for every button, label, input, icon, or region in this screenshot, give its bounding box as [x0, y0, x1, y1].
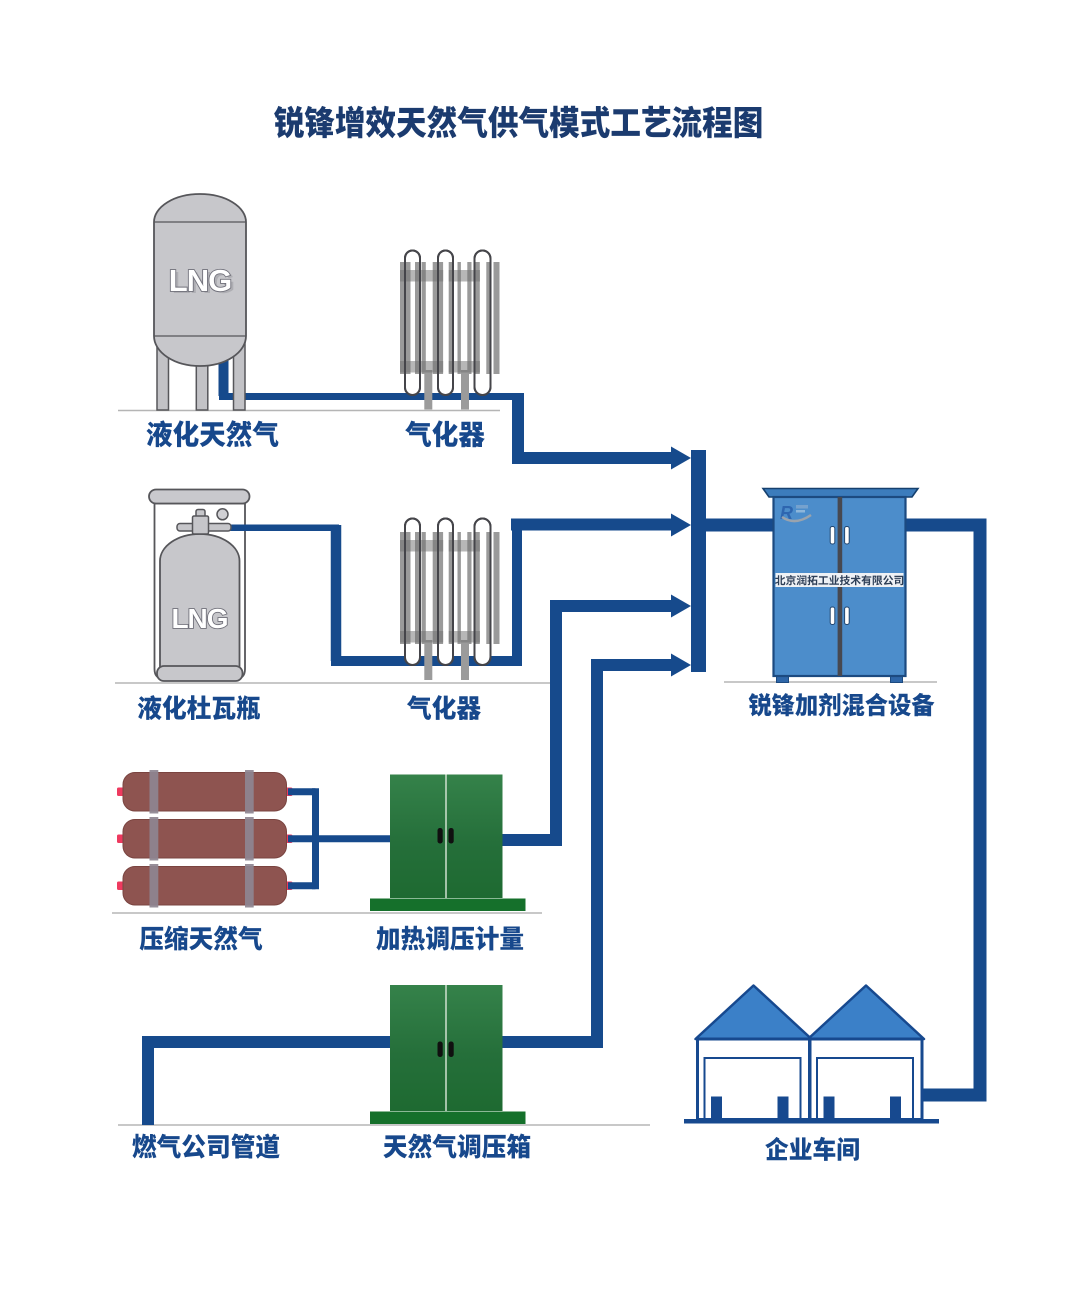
svg-text:LNG: LNG [171, 603, 227, 634]
svg-text:LNG: LNG [169, 263, 231, 298]
